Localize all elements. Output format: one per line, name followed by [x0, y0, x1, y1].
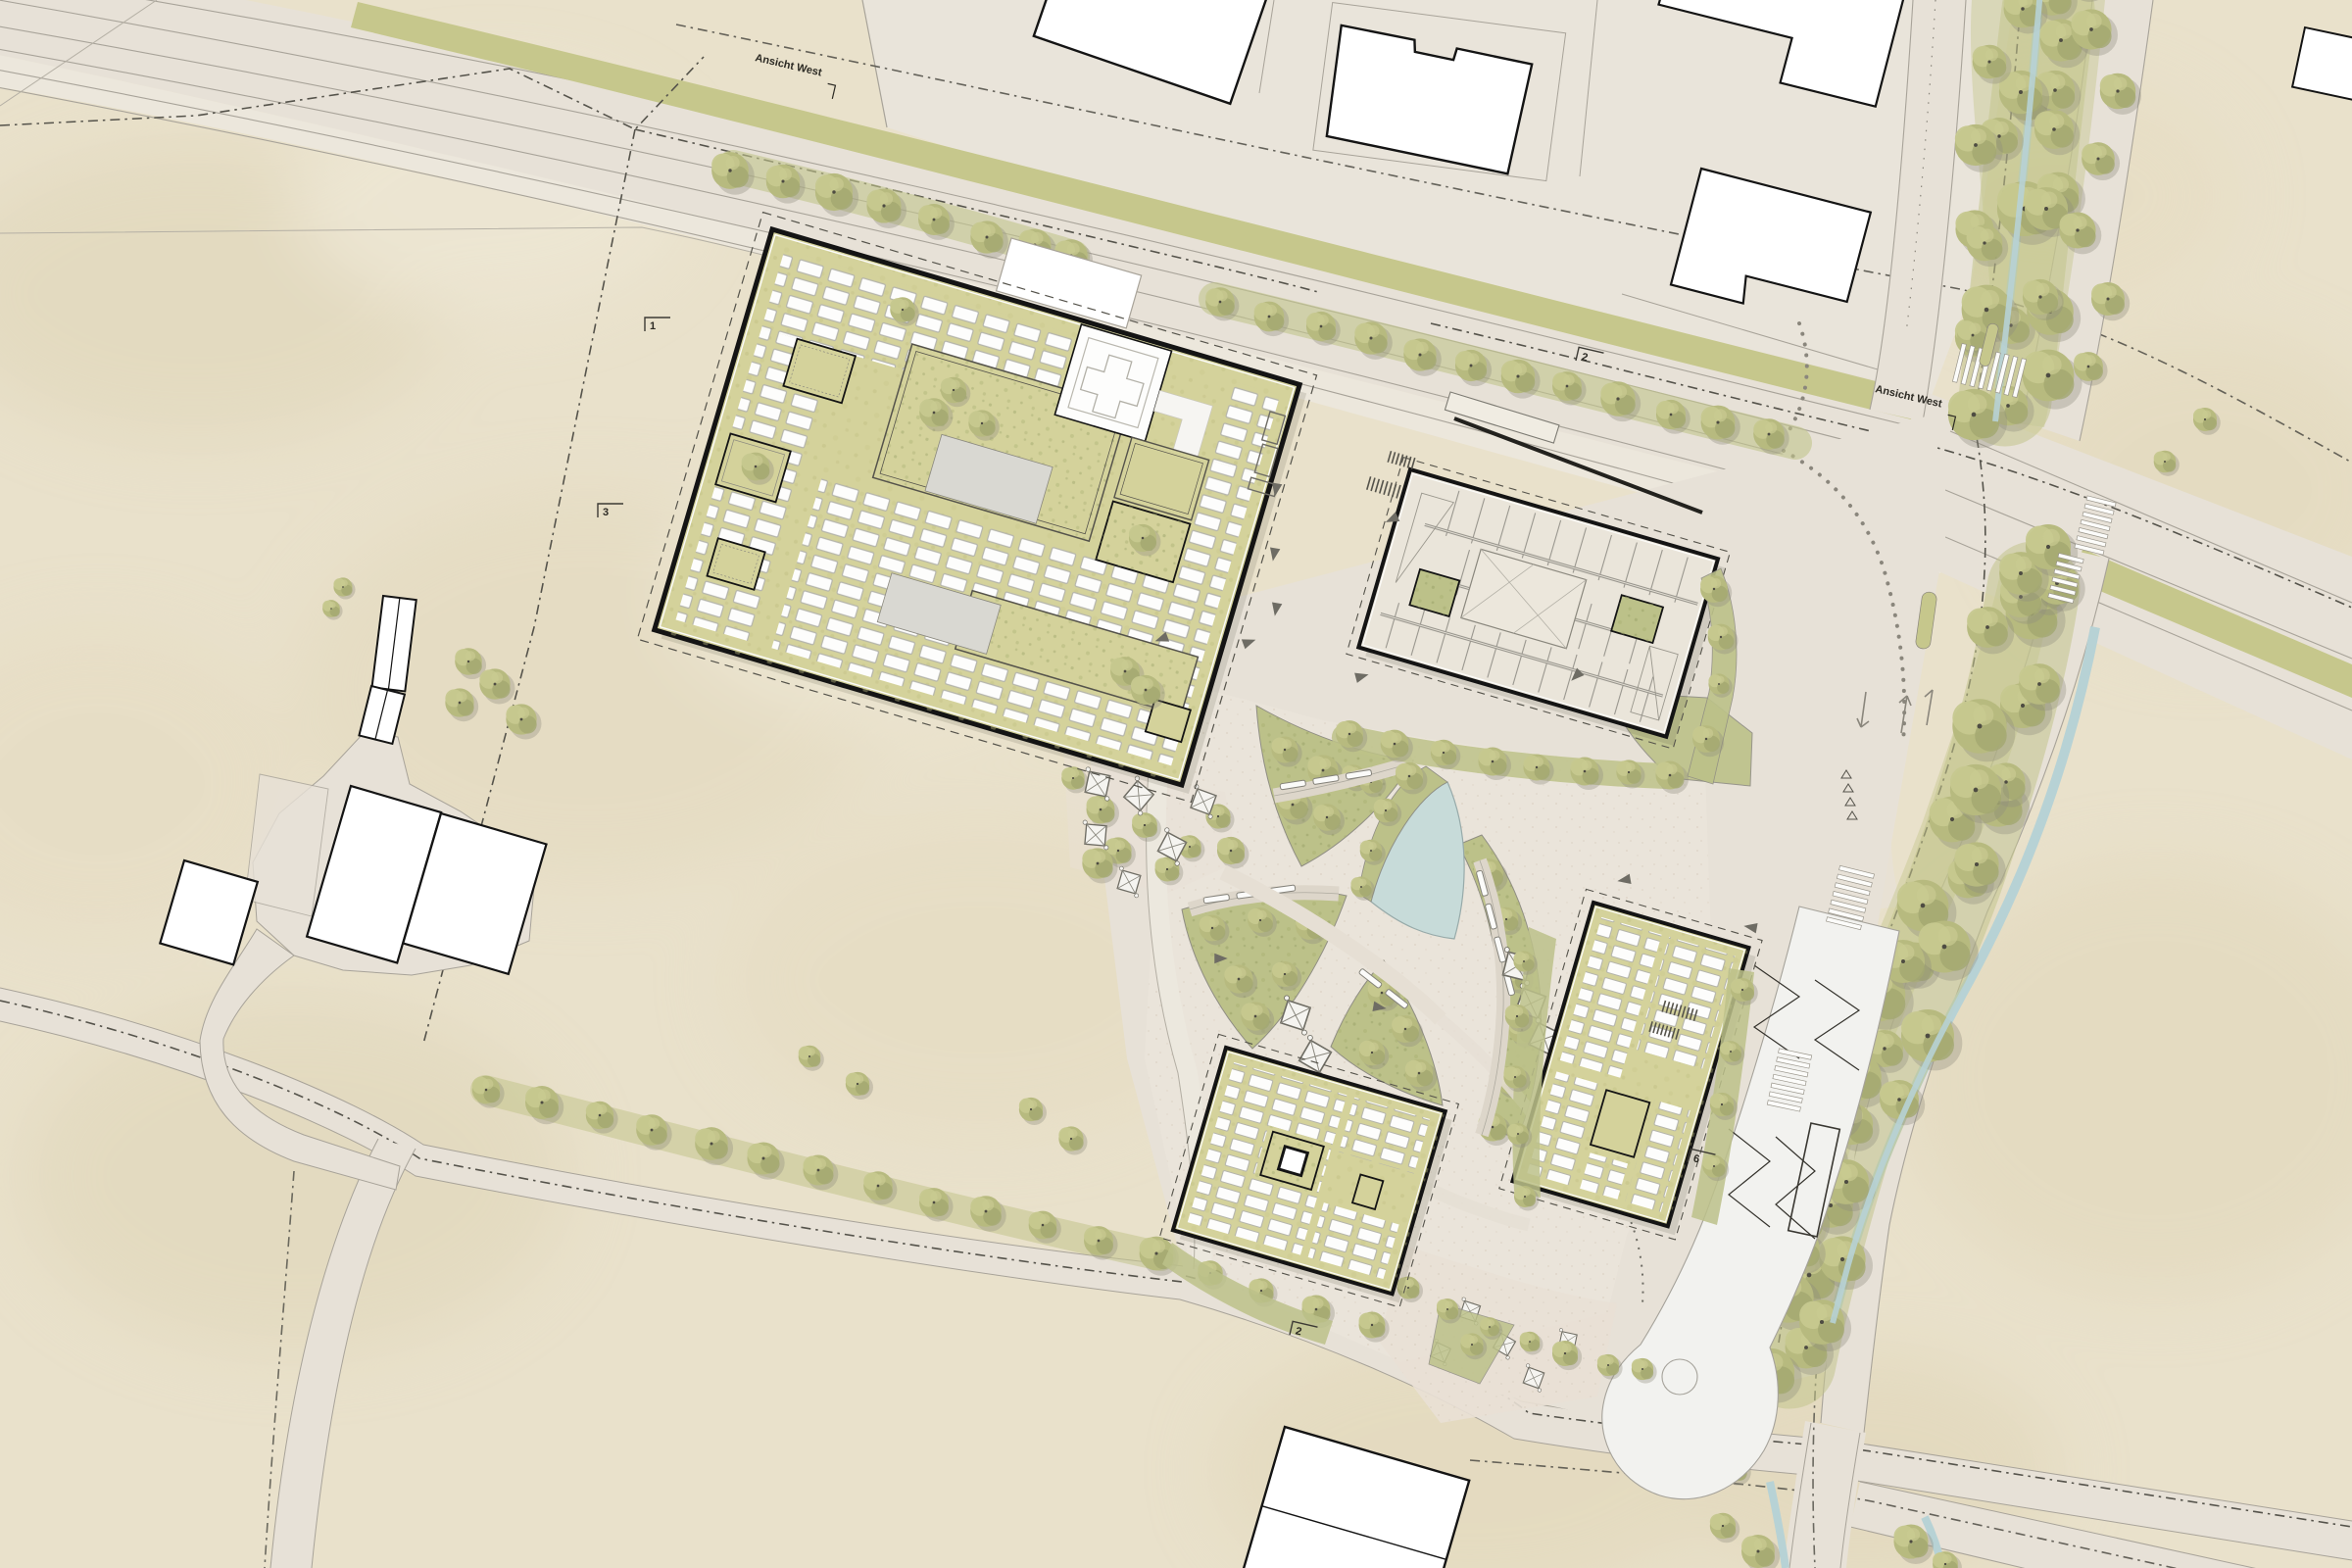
svg-text:3: 3 — [603, 507, 609, 518]
svg-text:1: 1 — [650, 320, 656, 332]
